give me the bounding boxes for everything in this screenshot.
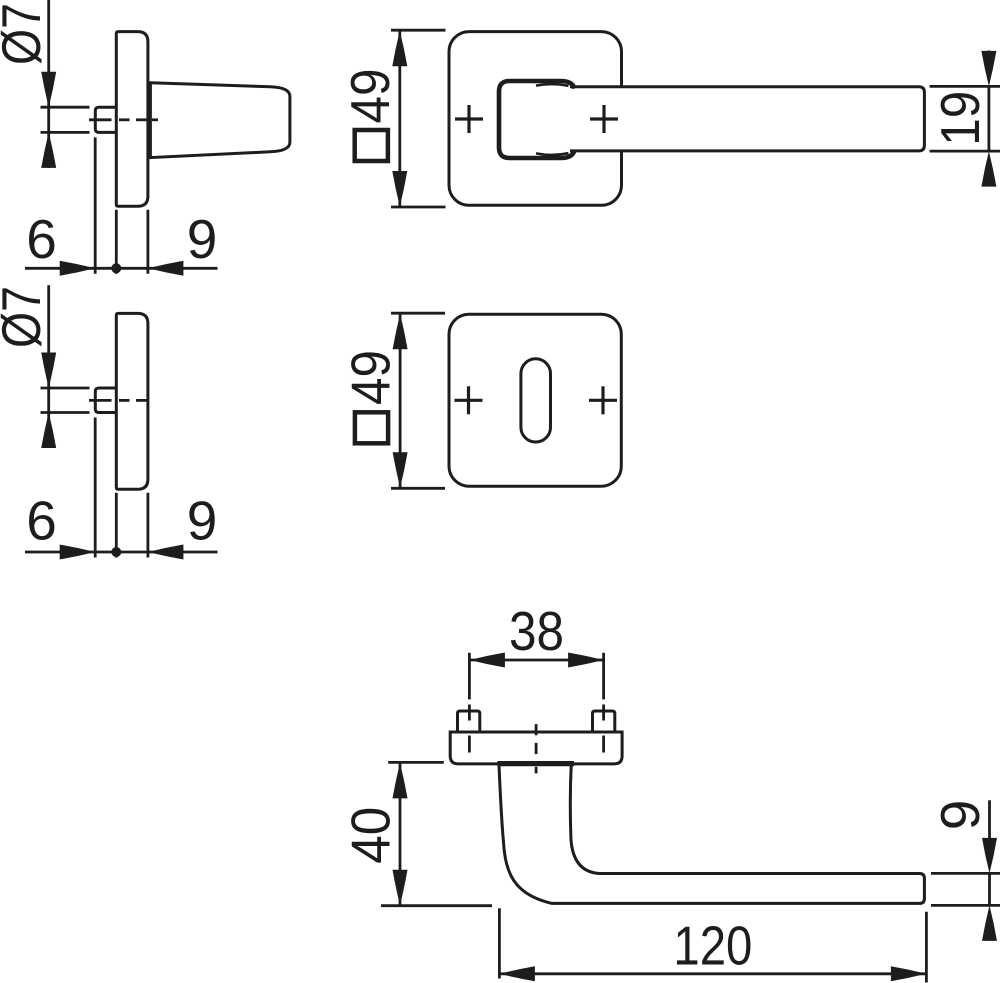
svg-text:120: 120 [673, 914, 752, 976]
svg-text:9: 9 [929, 800, 991, 831]
svg-text:Ø7: Ø7 [0, 286, 52, 348]
svg-text:19: 19 [929, 91, 991, 146]
svg-text:6: 6 [26, 208, 57, 270]
svg-text:49: 49 [340, 350, 402, 405]
svg-text:6: 6 [26, 490, 57, 552]
svg-text:9: 9 [187, 208, 218, 270]
svg-text:40: 40 [340, 807, 402, 864]
svg-text:9: 9 [187, 490, 218, 552]
svg-text:38: 38 [509, 600, 564, 662]
svg-text:Ø7: Ø7 [0, 3, 52, 65]
svg-text:49: 49 [339, 69, 401, 124]
